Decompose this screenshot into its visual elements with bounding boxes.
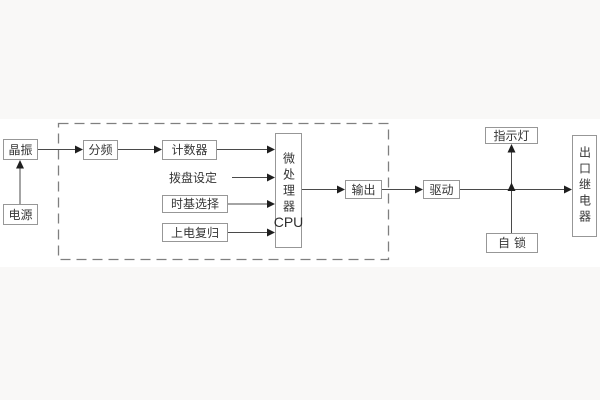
node-timebase-select: 时基选择 bbox=[162, 195, 228, 213]
node-output: 输出 bbox=[345, 180, 382, 199]
block-diagram: 晶振 电源 分频 计数器 拨盘设定 时基选择 上电复归 微处理器 CPU 输出 … bbox=[0, 0, 600, 400]
node-indicator-lamp: 指示灯 bbox=[485, 127, 538, 144]
node-power-supply: 电源 bbox=[3, 204, 38, 225]
arrowhead-right-icon bbox=[415, 186, 423, 194]
mcu-vertical-label: 微处理器 bbox=[283, 152, 295, 216]
arrowhead-up-icon bbox=[508, 183, 516, 192]
node-crystal-oscillator: 晶振 bbox=[3, 139, 38, 160]
arrowhead-right-icon bbox=[154, 146, 162, 154]
node-frequency-divider: 分频 bbox=[83, 140, 118, 160]
arrowhead-right-icon bbox=[267, 174, 275, 182]
mcu-cpu-label: CPU bbox=[274, 215, 304, 229]
node-outlet-relay: 出口继电器 bbox=[572, 135, 597, 237]
arrowhead-right-icon bbox=[267, 200, 275, 208]
arrowhead-up-icon bbox=[16, 160, 24, 169]
arrowhead-right-icon bbox=[267, 146, 275, 154]
node-self-lock: 自锁 bbox=[486, 233, 538, 253]
arrowhead-right-icon bbox=[564, 186, 572, 194]
label-dial-setting: 拨盘设定 bbox=[163, 170, 223, 185]
node-drive: 驱动 bbox=[423, 180, 460, 199]
node-counter: 计数器 bbox=[162, 140, 217, 160]
node-microprocessor-cpu: 微处理器 CPU bbox=[275, 133, 302, 248]
outlet-relay-vertical-label: 出口继电器 bbox=[579, 146, 591, 226]
arrowhead-right-icon bbox=[337, 186, 345, 194]
arrowhead-up-icon bbox=[508, 144, 516, 153]
node-power-on-reset: 上电复归 bbox=[162, 223, 228, 242]
arrowhead-right-icon bbox=[75, 146, 83, 154]
